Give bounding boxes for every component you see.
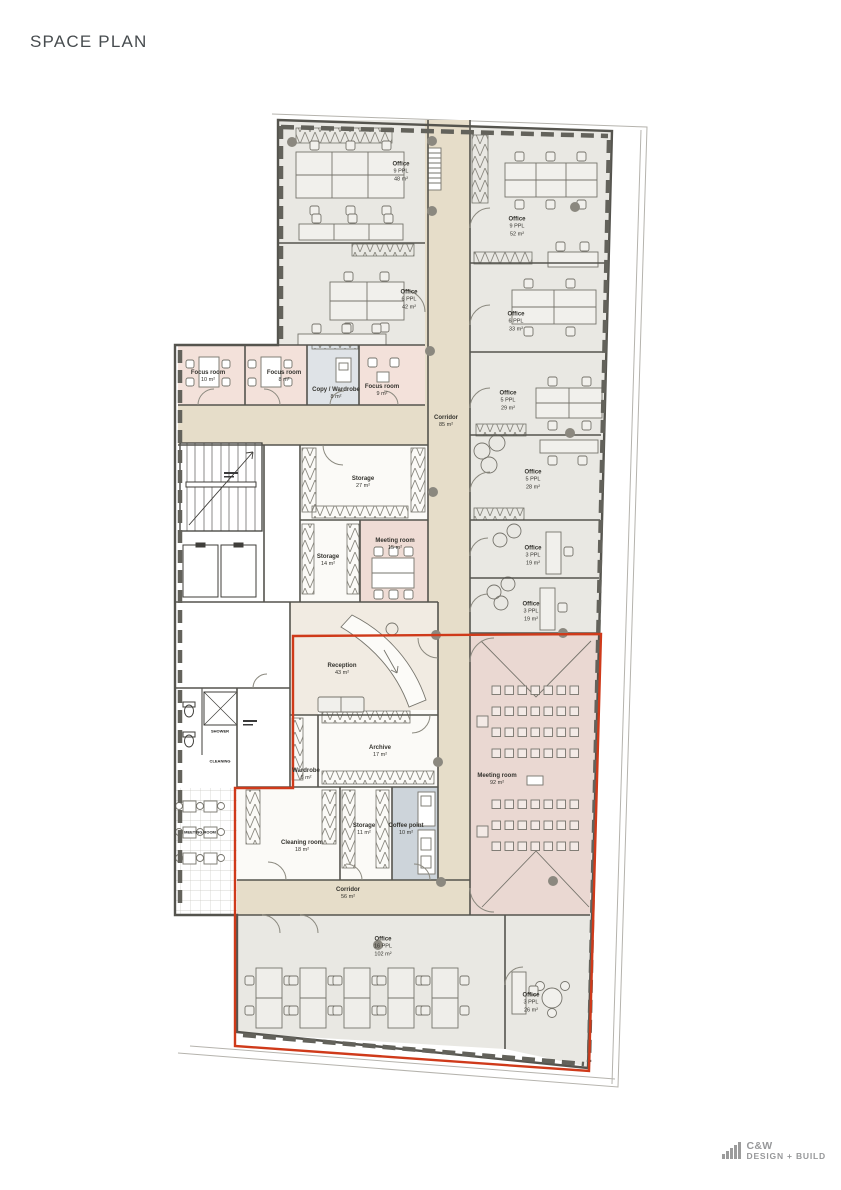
room-label-corridor-85: Corridor85 m² <box>434 414 458 430</box>
room-label-archive: Archive17 m² <box>369 744 391 760</box>
logo-text: C&W DESIGN + BUILD <box>747 1141 826 1161</box>
logo-tagline: DESIGN + BUILD <box>747 1152 826 1161</box>
room-label-focus-8: Focus room8 m² <box>267 369 301 385</box>
room-label-corridor-56: Corridor56 m² <box>336 886 360 902</box>
room-label-office-29: Office5 PPL29 m² <box>499 390 516 413</box>
room-label-meeting-15: Meeting room15 m² <box>375 537 414 553</box>
room-label-coffee-point: Coffee point10 m² <box>389 822 424 838</box>
room-label-office-48: Office9 PPL48 m² <box>392 161 409 184</box>
room-label-storage-14: Storage14 m² <box>317 553 339 569</box>
room-label-storage-27: Storage27 m² <box>352 475 374 491</box>
logo-bars-icon <box>722 1142 741 1159</box>
room-label-reception: Reception43 m² <box>327 662 356 678</box>
room-label-focus-10: Focus room10 m² <box>191 369 225 385</box>
room-label-office-102: Office16 PPL102 m² <box>374 936 392 959</box>
room-label-meeting-92: Meeting room92 m² <box>477 772 516 788</box>
room-label-focus-9: Focus room9 m² <box>365 383 399 399</box>
cw-design-build-logo: C&W DESIGN + BUILD <box>722 1141 826 1161</box>
floor-plan-drawing <box>0 0 841 1190</box>
room-label-office-33: Office6 PPL33 m² <box>507 311 524 334</box>
room-label-wardrobe: Wardrobe6 m² <box>292 767 320 783</box>
room-label-office-42: Office6 PPL42 m² <box>400 289 417 312</box>
room-label-office-26: Office3 PPL26 m² <box>522 992 539 1015</box>
room-label-copy-wardrobe: Copy / Wardrobe8 m² <box>312 386 360 402</box>
room-label-office-52: Office9 PPL52 m² <box>508 216 525 239</box>
logo-name: C&W <box>747 1141 826 1152</box>
core-label-meeting-room: MEETING ROOM <box>183 831 217 836</box>
open-office-desk-banks <box>245 968 469 1028</box>
core-label-cleaning: CLEANING <box>210 760 231 765</box>
room-label-office-28: Office5 PPL28 m² <box>524 469 541 492</box>
room-label-office-19-a: Office3 PPL19 m² <box>524 545 541 568</box>
room-label-office-19-b: Office3 PPL19 m² <box>522 601 539 624</box>
room-label-cleaning: Cleaning room18 m² <box>281 839 323 855</box>
space-plan-page: SPACE PLAN <box>0 0 841 1190</box>
core-label-shower: SHOWER <box>211 730 229 735</box>
room-label-storage-11: Storage11 m² <box>353 822 375 838</box>
